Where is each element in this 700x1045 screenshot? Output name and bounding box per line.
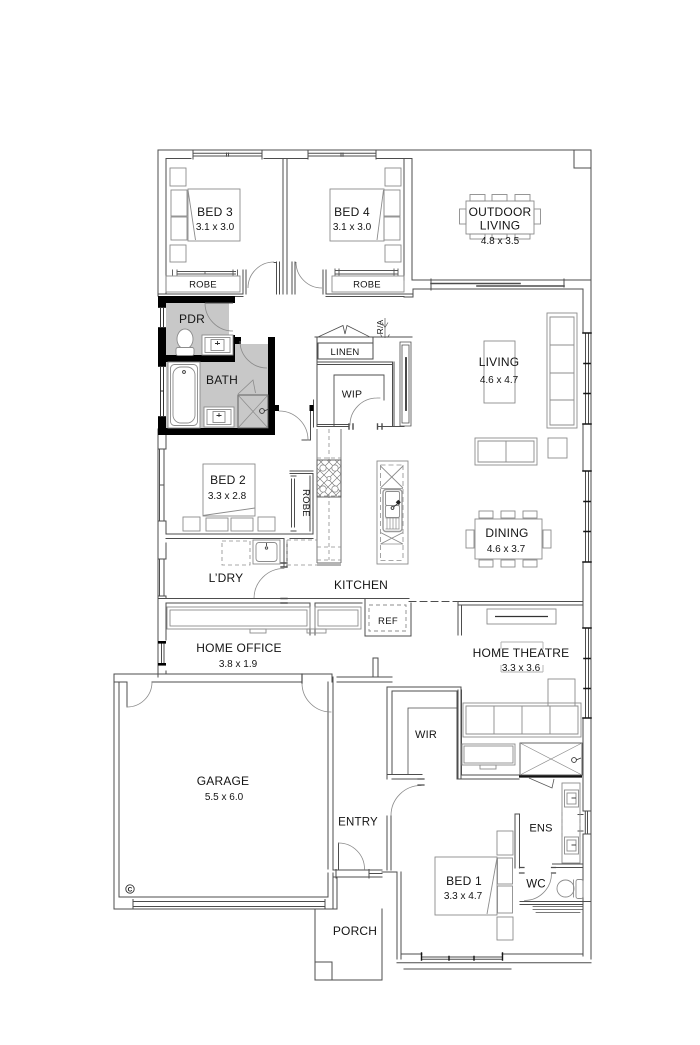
svg-text:4.6 x 4.7: 4.6 x 4.7	[480, 375, 519, 386]
svg-text:ENTRY: ENTRY	[338, 817, 378, 829]
svg-text:ROBE: ROBE	[189, 280, 217, 291]
svg-text:3.3 x 4.7: 3.3 x 4.7	[444, 891, 483, 902]
svg-text:WC: WC	[526, 879, 546, 891]
svg-text:DINING: DINING	[485, 526, 528, 540]
svg-text:HOME THEATRE: HOME THEATRE	[473, 646, 570, 660]
svg-text:L’DRY: L’DRY	[209, 571, 244, 585]
svg-text:3.8 x 1.9: 3.8 x 1.9	[219, 659, 258, 670]
svg-text:4.8 x 3.5: 4.8 x 3.5	[481, 236, 520, 247]
svg-text:LINEN: LINEN	[331, 347, 360, 358]
svg-text:LIVING: LIVING	[480, 219, 521, 233]
svg-text:KITCHEN: KITCHEN	[334, 578, 388, 592]
svg-text:3.3 x 2.8: 3.3 x 2.8	[208, 491, 247, 502]
svg-text:BED 2: BED 2	[210, 473, 246, 487]
svg-text:GARAGE: GARAGE	[197, 774, 250, 788]
svg-text:3.1 x 3.0: 3.1 x 3.0	[196, 222, 235, 233]
svg-text:ROBE: ROBE	[353, 280, 381, 291]
svg-text:PORCH: PORCH	[333, 924, 377, 938]
svg-text:3.3 x 3.6: 3.3 x 3.6	[502, 663, 541, 674]
svg-text:ENS: ENS	[529, 823, 552, 835]
svg-text:BED 3: BED 3	[197, 205, 233, 219]
svg-text:WIR: WIR	[415, 729, 437, 741]
svg-text:BED 4: BED 4	[334, 205, 370, 219]
svg-text:5.5 x 6.0: 5.5 x 6.0	[205, 792, 244, 803]
svg-text:WIP: WIP	[342, 389, 362, 401]
svg-text:REF: REF	[378, 616, 398, 627]
svg-text:PDR: PDR	[179, 312, 205, 326]
svg-text:OUTDOOR: OUTDOOR	[469, 205, 532, 219]
svg-text:BED 1: BED 1	[446, 874, 482, 888]
svg-text:4.6 x 3.7: 4.6 x 3.7	[487, 544, 526, 555]
svg-text:C: C	[128, 887, 133, 894]
svg-text:BATH: BATH	[206, 373, 238, 387]
svg-text:LIVING: LIVING	[479, 355, 520, 369]
svg-text:R/A: R/A	[375, 319, 385, 334]
svg-text:HOME OFFICE: HOME OFFICE	[196, 641, 282, 655]
svg-text:3.1 x 3.0: 3.1 x 3.0	[333, 222, 372, 233]
svg-text:ROBE: ROBE	[300, 489, 311, 517]
